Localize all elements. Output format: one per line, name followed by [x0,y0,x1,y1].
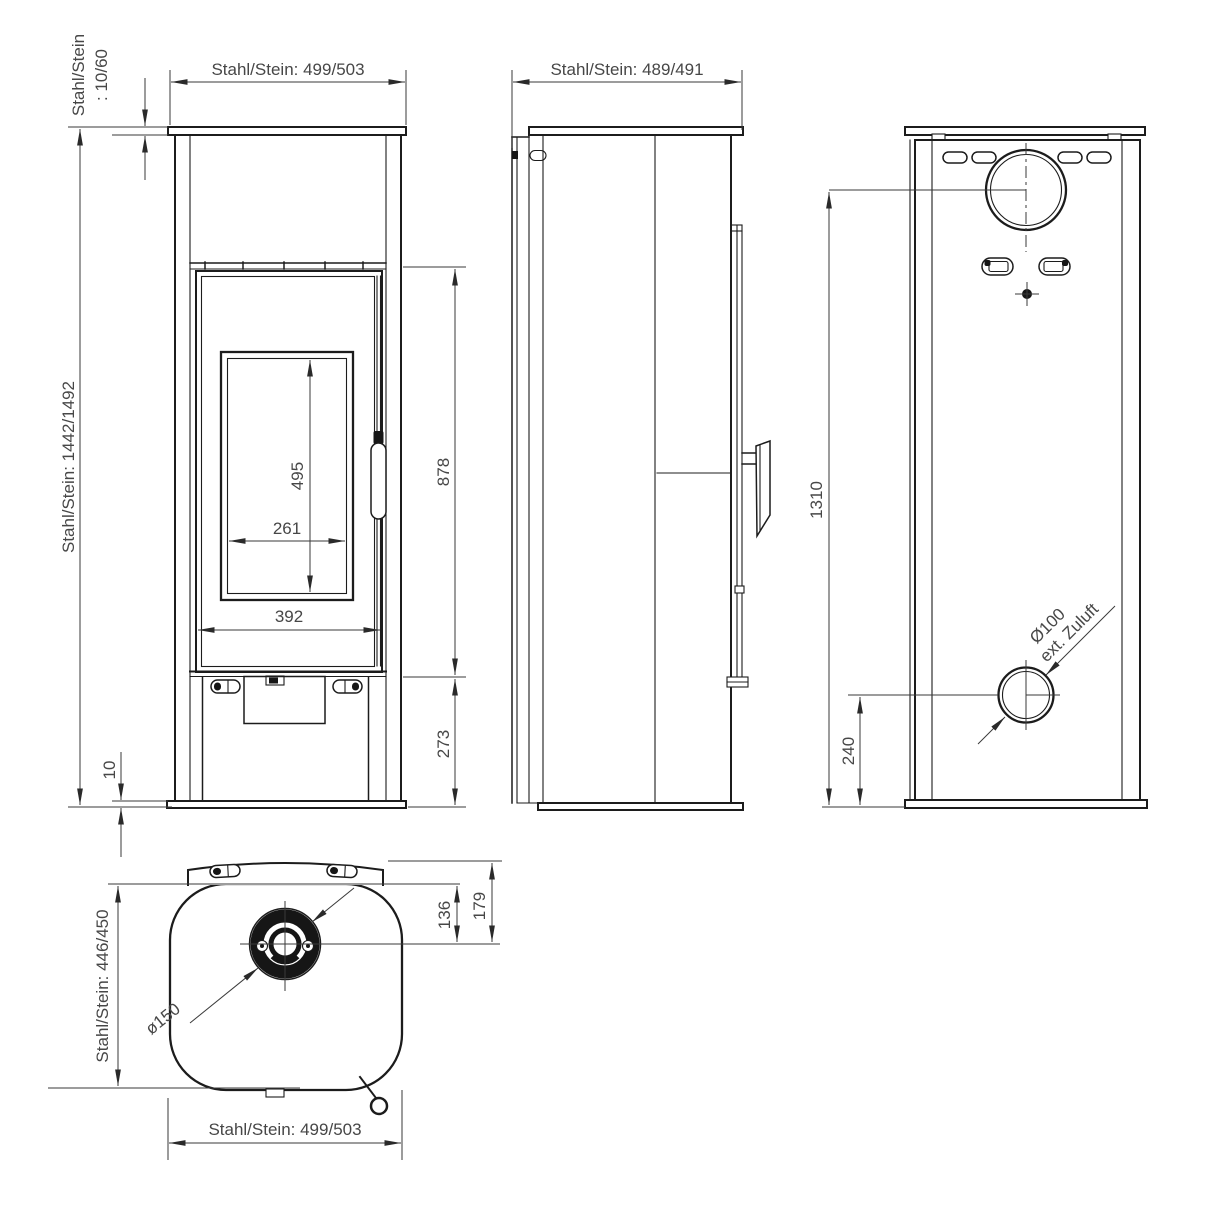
dim-glass-height: 495 [288,360,310,592]
back-base-plate [905,800,1147,808]
top-bar-slot-right [327,864,358,878]
drawing-page: Stahl/Stein: 499/503 Stahl/Stein : 10/60… [0,0,1214,1214]
dim-upper-height: 878 [403,267,466,675]
flue-diameter-label: ø150 [142,999,184,1038]
dim-air-inlet-diameter: Ø100 ext. Zuluft [978,585,1115,744]
side-door-handle [742,441,770,536]
front-height-label: Stahl/Stein: 1442/1492 [59,381,78,553]
front-vent-right [333,680,362,693]
back-lower-slot-left [982,258,1013,275]
side-base-plate [538,803,743,810]
top-view [170,863,500,1114]
dim-front-width: Stahl/Stein: 499/503 [170,60,406,125]
side-top-slot [530,151,546,161]
back-view [905,127,1147,808]
dim-glass-width: 261 [229,519,345,541]
front-vent-left [211,680,240,693]
side-latch-block [512,151,519,159]
door-width-label: 392 [275,607,303,626]
flue-height-label: 1310 [807,481,826,519]
top-bar-slot-left [210,864,241,878]
back-lower-slot-right [1039,258,1070,275]
dim-door-width: 392 [198,607,380,630]
upper-height-label: 878 [434,458,453,486]
dim-top-width: Stahl/Stein: 499/503 [168,1090,402,1160]
front-width-label: Stahl/Stein: 499/503 [211,60,364,79]
dim-bottom-clearance: 10 [68,752,172,857]
side-depth-label: Stahl/Stein: 489/491 [550,60,703,79]
back-body [915,140,1140,800]
base-height-label: 273 [434,730,453,758]
front-view [167,127,406,808]
dim-total-height: Stahl/Stein: 1442/1492 [59,129,80,805]
top-flue-collar [240,901,500,991]
flue-offset-body-label: 136 [435,901,454,929]
side-door-edge [731,225,744,677]
flue-offset-bar-label: 179 [470,892,489,920]
plate-label-line1: Stahl/Stein [69,34,88,116]
plate-label-line2: : 10/60 [92,49,111,101]
front-door-handle [371,443,386,519]
dim-flue-height: 1310 [807,190,1026,807]
top-width-label: Stahl/Stein: 499/503 [208,1120,361,1139]
dim-air-inlet-height: 240 [839,695,1060,805]
dim-flue-diameter: ø150 [142,888,354,1038]
side-top-plate [529,127,743,135]
side-view [512,127,771,810]
back-center-bolt [1015,282,1039,306]
stove-dimension-drawing: Stahl/Stein: 499/503 Stahl/Stein : 10/60… [0,0,1214,1214]
dim-base-height: 273 [403,677,466,807]
side-foot-bracket [727,677,748,687]
bottom-clearance-label: 10 [100,761,119,780]
front-latch [266,676,284,685]
dim-flue-offset-body: 136 [435,886,457,942]
top-front-tab [266,1089,284,1097]
back-top-vent-slots [943,152,1111,163]
glass-width-label: 261 [273,519,301,538]
glass-height-label: 495 [288,462,307,490]
front-handle-pivot [374,431,384,444]
front-door-glass [228,359,347,594]
top-depth-label: Stahl/Stein: 446/450 [93,909,112,1062]
front-top-plate [168,127,406,135]
air-inlet-height-label: 240 [839,737,858,765]
front-base-plate [167,801,406,808]
dim-plate-thickness: Stahl/Stein : 10/60 [68,34,168,180]
front-door-glass-frame [221,352,353,600]
